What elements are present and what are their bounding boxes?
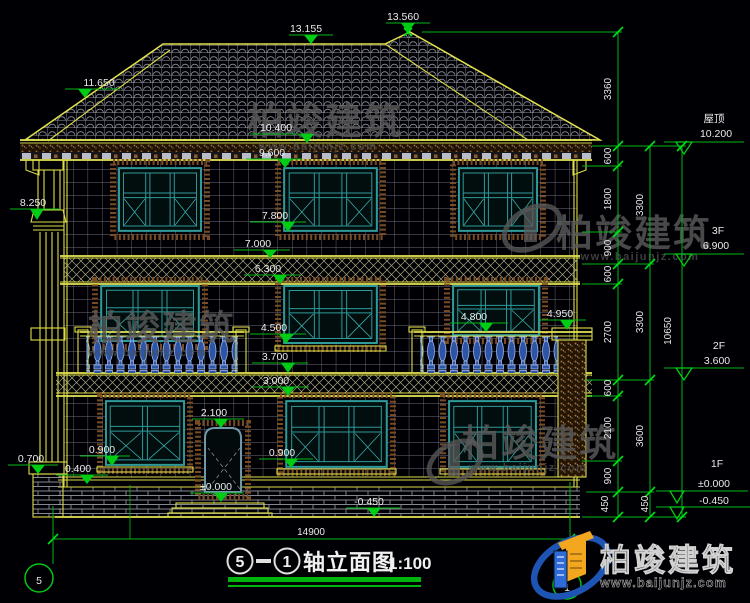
- title-text: 轴立面图: [303, 550, 395, 575]
- dimension-chain-overall: 10650: [663, 141, 687, 522]
- level-2f: 2F 3.600: [664, 340, 744, 380]
- elevation-marker-label: 3.000: [263, 375, 289, 387]
- dim-value: 3360: [603, 77, 614, 100]
- level-value: 3.600: [704, 355, 730, 367]
- elevation-marker-label: 11.650: [83, 77, 114, 89]
- elevation-marker-label: 0.900: [89, 444, 115, 456]
- elevation-drawing: 柏竣建筑 www.baijunjz.com 柏竣建筑 www.baijunjz.…: [0, 0, 750, 603]
- axis-bubble-left: 5: [25, 564, 53, 592]
- dim-value: 3300: [635, 193, 646, 216]
- title-axis-end: 1: [283, 554, 292, 571]
- dim-value: 1800: [603, 187, 614, 210]
- level-name: 屋顶: [704, 113, 725, 125]
- elevation-marker-label: 13.560: [387, 11, 419, 23]
- window: [119, 168, 201, 231]
- watermark-brand: 柏竣建筑: [556, 212, 712, 254]
- dim-value: 2100: [603, 416, 614, 439]
- elevation-marker-label: 3.700: [262, 351, 288, 363]
- balusters: [420, 336, 558, 373]
- elevation-marker-label: ±0.000: [200, 481, 232, 493]
- watermark-url: www.baijunjz.com: [468, 462, 588, 474]
- dim-value: 450: [600, 495, 611, 512]
- windows-3f: [113, 162, 543, 237]
- dim-value: 3600: [635, 424, 646, 447]
- elevation-marker-label: 4.950: [547, 308, 573, 320]
- dim-value: 10650: [663, 317, 674, 345]
- elevation-marker-label: 9.600: [259, 147, 285, 159]
- cad-canvas: 柏竣建筑 www.baijunjz.com 柏竣建筑 www.baijunjz.…: [0, 0, 750, 603]
- axis-number: 5: [36, 575, 42, 587]
- floor-band-upper: [60, 256, 580, 284]
- dimension-chain-mid: 3300 3300 3600 450: [635, 141, 655, 522]
- title-underline-thin: [228, 585, 421, 587]
- watermark-url: www.baijunjz.com: [88, 347, 208, 359]
- level-roof: 屋顶 10.200: [664, 113, 744, 154]
- brand-logo-text: 柏竣建筑: [600, 543, 736, 578]
- window: [286, 401, 387, 467]
- level-name: 1F: [711, 458, 723, 470]
- elevation-marker-label: 2.100: [201, 407, 227, 419]
- elevation-marker-label: 7.000: [245, 238, 271, 250]
- dim-value: 450: [640, 495, 651, 512]
- dim-value: 600: [603, 379, 614, 396]
- elevation-marker-label: 6.300: [255, 263, 281, 275]
- elevation-marker: 13.560: [386, 11, 430, 32]
- window: [284, 168, 377, 231]
- level-value: 6.900: [703, 240, 729, 252]
- level-name: 3F: [712, 225, 724, 237]
- level-value: ±0.000: [698, 478, 730, 490]
- dim-value: 2700: [603, 320, 614, 343]
- elevation-marker-label: 0.700: [18, 453, 44, 465]
- watermark-brand: 柏竣建筑: [247, 100, 403, 142]
- elevation-marker-label: 0.900: [269, 447, 295, 459]
- total-width-value: 14900: [297, 527, 325, 538]
- elevation-marker-label: 7.800: [262, 210, 288, 222]
- brand-logo-url: www.baijunjz.com: [599, 576, 727, 590]
- level-name: 2F: [713, 340, 725, 352]
- level-ground: -0.450: [656, 495, 750, 519]
- elevation-marker-label: 0.400: [65, 463, 91, 475]
- title-scale: 1:100: [388, 554, 431, 573]
- watermark-brand: 柏竣建筑: [462, 422, 618, 464]
- dim-value: 600: [603, 265, 614, 282]
- elevation-marker: 0.700: [8, 453, 58, 474]
- elevation-marker-label: 13.155: [290, 23, 322, 35]
- brand-logo: 柏竣建筑 www.baijunjz.com: [524, 525, 736, 603]
- title-axis-start: 5: [236, 554, 245, 571]
- dim-value: 600: [603, 147, 614, 164]
- elevation-marker: 8.250: [10, 197, 60, 220]
- elevation-marker-label: 4.800: [461, 311, 487, 323]
- elevation-marker-label: -0.450: [354, 496, 384, 508]
- drawing-title: 5 1 轴立面图 1:100: [228, 549, 432, 588]
- dim-value: 900: [603, 239, 614, 256]
- dim-value: 3300: [635, 310, 646, 333]
- elevation-marker-label: 4.500: [261, 322, 287, 334]
- level-value: -0.450: [699, 495, 729, 507]
- level-value: 10.200: [700, 128, 732, 140]
- window: [106, 401, 184, 465]
- elevation-marker-label: 10.400: [260, 122, 292, 134]
- watermark-brand: 柏竣建筑: [88, 308, 236, 348]
- plinth: [55, 477, 580, 517]
- dim-value: 900: [603, 467, 614, 484]
- title-dash: [256, 559, 271, 563]
- elevation-marker-label: 8.250: [20, 197, 46, 209]
- elevation-marker: 13.155: [289, 23, 333, 44]
- title-underline: [228, 577, 421, 582]
